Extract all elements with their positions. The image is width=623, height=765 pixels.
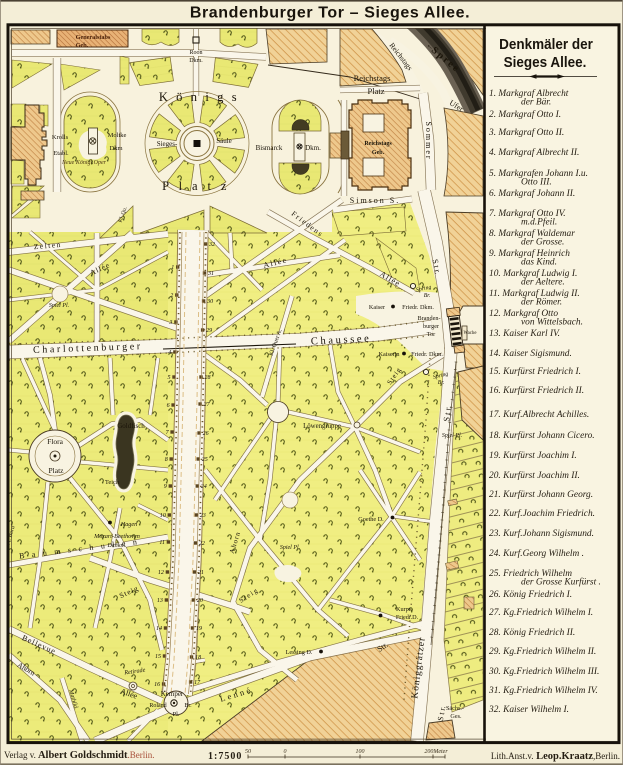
svg-text:21: 21 (198, 570, 204, 576)
svg-text:Branden-: Branden- (417, 315, 440, 322)
svg-text:24. Kurf.Georg Wilhelm .: 24. Kurf.Georg Wilhelm . (489, 548, 584, 559)
svg-text:Dkm: Dkm (110, 145, 123, 152)
svg-text:das Kind.: das Kind. (521, 258, 557, 268)
svg-text:Simson S.: Simson S. (350, 196, 400, 205)
svg-text:Geb.: Geb. (76, 42, 89, 49)
svg-text:Lessing D.: Lessing D. (286, 649, 313, 656)
svg-text:S t r.: S t r. (441, 405, 453, 422)
svg-text:Goldfisch: Goldfisch (117, 422, 145, 430)
svg-text:15. Kurfürst Friedrich I.: 15. Kurfürst Friedrich I. (489, 366, 581, 377)
svg-text:1:7500: 1:7500 (208, 751, 242, 762)
svg-text:4. Markgraf Albrecht II.: 4. Markgraf Albrecht II. (489, 147, 579, 158)
svg-text:15: 15 (155, 654, 161, 660)
svg-text:25: 25 (202, 457, 208, 463)
svg-text:Generalstabs: Generalstabs (76, 34, 111, 41)
svg-text:21. Kurfürst Johann Georg.: 21. Kurfürst Johann Georg. (489, 489, 593, 500)
svg-text:20. Kurfürst Joachim II.: 20. Kurfürst Joachim II. (489, 470, 580, 481)
svg-text:Friedr. Dkm.: Friedr. Dkm. (411, 351, 443, 358)
svg-text:Denkmäler der: Denkmäler der (499, 36, 593, 53)
svg-text:Geb.: Geb. (372, 150, 385, 156)
svg-text:K ö n i g s: K ö n i g s (159, 90, 239, 104)
svg-text:23. Kurf.Johann Sigismund.: 23. Kurf.Johann Sigismund. (489, 528, 594, 539)
svg-text:Neue Königl.Oper: Neue Königl.Oper (61, 160, 107, 166)
svg-text:der Grosse Kurfürst .: der Grosse Kurfürst . (521, 577, 601, 588)
svg-text:13. Kaiser Karl IV.: 13. Kaiser Karl IV. (489, 329, 560, 339)
svg-text:Kemper: Kemper (161, 690, 184, 698)
svg-text:19: 19 (196, 626, 202, 632)
svg-text:14: 14 (156, 625, 162, 632)
svg-text:3: 3 (168, 320, 172, 326)
svg-text:Dkm.: Dkm. (189, 58, 203, 64)
svg-text:burger: burger (423, 323, 439, 330)
svg-text:P l a t z: P l a t z (162, 179, 230, 193)
svg-text:27. Kg.Friedrich Wilhelm I.: 27. Kg.Friedrich Wilhelm I. (489, 608, 593, 618)
svg-text:Reichstags: Reichstags (364, 141, 392, 147)
svg-text:Verlag v. Albert Goldschmidt.B: Verlag v. Albert Goldschmidt.Berlin. (4, 750, 155, 761)
svg-text:16: 16 (154, 682, 160, 688)
svg-text:Kurpr.: Kurpr. (396, 606, 412, 613)
svg-text:Reichstags: Reichstags (354, 73, 391, 83)
svg-text:Br.: Br. (424, 293, 431, 299)
svg-text:16. Kurfürst Friedrich II.: 16. Kurfürst Friedrich II. (489, 385, 584, 396)
svg-text:22. Kurf.Joachim Friedrich.: 22. Kurf.Joachim Friedrich. (489, 508, 595, 519)
svg-text:31: 31 (207, 271, 214, 277)
svg-text:Hagen: Hagen (120, 521, 138, 528)
svg-text:m.d.Pfeil.: m.d.Pfeil. (521, 217, 557, 228)
svg-text:Teich: Teich (105, 479, 120, 486)
svg-text:26: 26 (203, 431, 209, 437)
svg-text:der Bär.: der Bär. (521, 98, 551, 108)
svg-text:14. Kaiser Sigismund.: 14. Kaiser Sigismund. (489, 349, 572, 359)
svg-text:28: 28 (205, 375, 211, 381)
svg-text:100: 100 (356, 749, 365, 755)
svg-text:11: 11 (159, 540, 165, 546)
svg-text:30. Kg.Friedrich Wilhelm III.: 30. Kg.Friedrich Wilhelm III. (488, 667, 599, 677)
svg-text:4: 4 (168, 349, 171, 356)
svg-text:Friedr. Dkm.: Friedr. Dkm. (402, 304, 434, 311)
svg-text:Spiel Pl.: Spiel Pl. (49, 303, 69, 309)
svg-text:27: 27 (204, 402, 211, 408)
svg-text:29: 29 (206, 328, 212, 334)
svg-text:Platz: Platz (368, 86, 385, 96)
svg-text:17. Kurf.Albrecht Achilles.: 17. Kurf.Albrecht Achilles. (489, 409, 589, 420)
svg-text:Moltke: Moltke (108, 132, 127, 139)
svg-text:der Aeltere.: der Aeltere. (521, 278, 565, 288)
svg-text:30: 30 (206, 299, 213, 305)
svg-text:Kaiser: Kaiser (369, 304, 385, 311)
svg-text:0: 0 (284, 749, 287, 755)
svg-text:18. Kurfürst Johann Cicero.: 18. Kurfürst Johann Cicero. (489, 430, 595, 441)
svg-text:6. Markgraf Johann II.: 6. Markgraf Johann II. (489, 188, 575, 199)
svg-text:Friedr.D.: Friedr.D. (396, 614, 419, 621)
svg-text:Flora: Flora (47, 437, 64, 446)
svg-text:26. König Friedrich I.: 26. König Friedrich I. (489, 590, 572, 600)
svg-text:9: 9 (164, 484, 167, 490)
svg-text:Brandenburger Tor – Sieges A: Brandenburger Tor – Sieges Allee. (190, 5, 470, 22)
svg-text:Platz: Platz (49, 466, 65, 475)
svg-text:24: 24 (201, 483, 207, 490)
svg-text:32: 32 (208, 242, 215, 248)
svg-text:Sieges Allee.: Sieges Allee. (504, 54, 587, 71)
svg-text:Lith.Anst.v. Leop.Kraatz,Berli: Lith.Anst.v. Leop.Kraatz,Berlin. (491, 751, 620, 762)
svg-text:2. Markgraf Otto I.: 2. Markgraf Otto I. (489, 109, 561, 120)
svg-text:Goethe D.: Goethe D. (358, 516, 384, 523)
svg-text:Dkm.: Dkm. (305, 144, 321, 152)
svg-text:Pl.: Pl. (172, 711, 179, 718)
svg-text:Otto III.: Otto III. (521, 178, 552, 188)
svg-text:18: 18 (195, 655, 201, 661)
svg-text:Wache: Wache (464, 331, 477, 336)
svg-text:17: 17 (194, 680, 201, 686)
svg-text:200Meter: 200Meter (424, 749, 448, 755)
svg-text:S o m m e r: S o m m e r (424, 121, 433, 158)
svg-text:31. Kg.Friedrich Wilhelm IV.: 31. Kg.Friedrich Wilhelm IV. (488, 686, 598, 696)
svg-text:Br.: Br. (438, 380, 445, 386)
svg-text:Kaiserin: Kaiserin (379, 351, 400, 358)
svg-text:32. Kaiser Wilhelm I.: 32. Kaiser Wilhelm I. (488, 705, 569, 715)
svg-text:12: 12 (158, 570, 164, 576)
svg-text:Roon: Roon (189, 50, 202, 56)
svg-text:Säule: Säule (216, 137, 232, 145)
svg-text:von Wittelsbach.: von Wittelsbach. (521, 318, 583, 328)
svg-text:22: 22 (199, 541, 205, 547)
svg-text:Spiel Pl.: Spiel Pl. (442, 433, 462, 439)
svg-text:Löwengruppe: Löwengruppe (303, 423, 341, 430)
svg-text:29. Kg.Friedrich Wilhelm II.: 29. Kg.Friedrich Wilhelm II. (489, 647, 596, 657)
svg-text:Sieges-: Sieges- (157, 140, 178, 148)
svg-text:8: 8 (165, 457, 168, 463)
svg-text:Tor: Tor (427, 331, 436, 338)
svg-text:Spiel Pl.: Spiel Pl. (280, 545, 300, 551)
svg-text:Br.: Br. (184, 703, 192, 709)
svg-text:Bismarck: Bismarck (256, 144, 283, 152)
svg-text:Ges.: Ges. (450, 713, 462, 720)
svg-text:Etabl.: Etabl. (53, 150, 69, 157)
svg-text:10: 10 (160, 513, 166, 519)
svg-text:13: 13 (157, 598, 163, 604)
svg-text:20: 20 (197, 598, 203, 604)
svg-text:der Römer.: der Römer. (521, 298, 562, 308)
svg-text:Sächs.-: Sächs.- (446, 705, 464, 712)
svg-text:2: 2 (170, 293, 173, 299)
svg-text:23: 23 (200, 513, 206, 519)
svg-text:5: 5 (168, 375, 171, 381)
svg-text:6: 6 (167, 403, 170, 409)
svg-text:Krolls: Krolls (52, 134, 69, 141)
svg-text:3. Markgraf Otto II.: 3. Markgraf Otto II. (488, 127, 564, 138)
svg-text:28. König Friedrich II.: 28. König Friedrich II. (489, 628, 575, 638)
svg-text:19. Kurfürst Joachim I.: 19. Kurfürst Joachim I. (489, 450, 577, 461)
svg-text:der Grosse.: der Grosse. (521, 238, 564, 248)
svg-text:1: 1 (171, 265, 174, 271)
svg-text:50: 50 (245, 749, 251, 755)
svg-text:Roland: Roland (149, 703, 166, 709)
